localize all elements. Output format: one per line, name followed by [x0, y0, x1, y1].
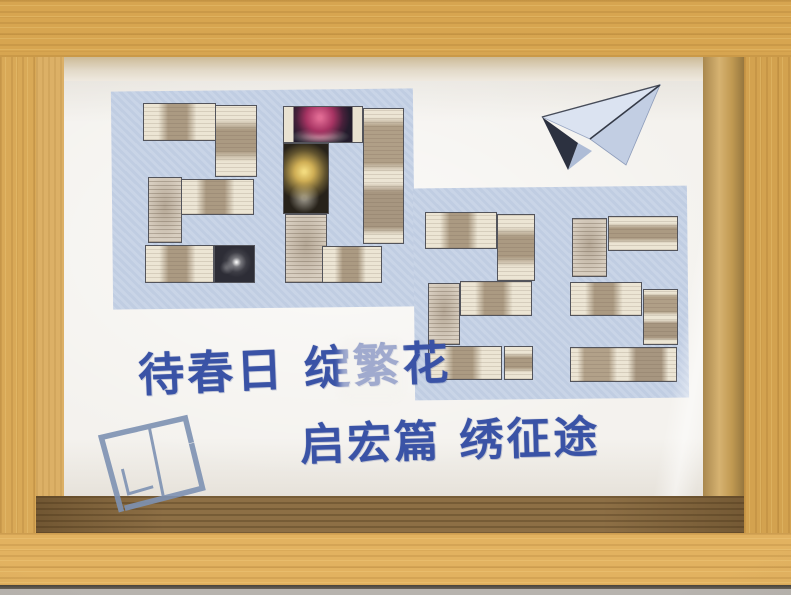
collage-tile — [570, 282, 642, 315]
photo-of-framed-artwork: 2025 待春日 绽繁花 启宏篇 绣征途 — [0, 0, 791, 595]
artwork-paper: 2025 待春日 绽繁花 启宏篇 绣征途 — [64, 81, 703, 496]
paper-airplane-icon — [534, 77, 666, 177]
calligraphy-line-2: 启宏篇 绣征途 — [299, 401, 601, 473]
frame-left-bevel — [36, 57, 64, 496]
collage-tile — [215, 105, 257, 177]
frame-right-face — [744, 0, 791, 588]
collage-tile — [148, 177, 182, 244]
collage-tile — [460, 281, 532, 316]
collage-tile — [570, 347, 677, 382]
collage-tile — [283, 106, 363, 143]
book-sketch-icon — [92, 413, 222, 513]
collage-tile — [504, 346, 533, 380]
collage-tile — [283, 143, 329, 214]
collage-tile — [363, 108, 404, 244]
collage-digit-0 — [283, 106, 404, 283]
collage-tile — [497, 214, 536, 281]
collage-tile — [643, 289, 678, 345]
collage-digit-2 — [143, 103, 257, 283]
collage-tile — [143, 103, 216, 141]
collage-tile — [425, 212, 497, 249]
collage-tile — [145, 245, 213, 283]
collage-tile — [572, 218, 607, 278]
frame-bottom-face — [0, 533, 791, 588]
background-surface — [0, 589, 791, 595]
collage-tile — [608, 216, 678, 251]
collage-year: 2025 — [64, 81, 65, 82]
frame-left-face — [0, 0, 36, 588]
calligraphy-line-1: 待春日 绽繁花 — [137, 326, 453, 405]
collage-digit-5 — [570, 216, 678, 382]
collage-tile — [181, 179, 254, 215]
collage-tile — [214, 245, 255, 283]
collage-tile — [322, 246, 383, 283]
collage-tile — [285, 214, 326, 283]
frame-top-face — [0, 0, 791, 57]
frame-right-bevel — [703, 57, 744, 496]
